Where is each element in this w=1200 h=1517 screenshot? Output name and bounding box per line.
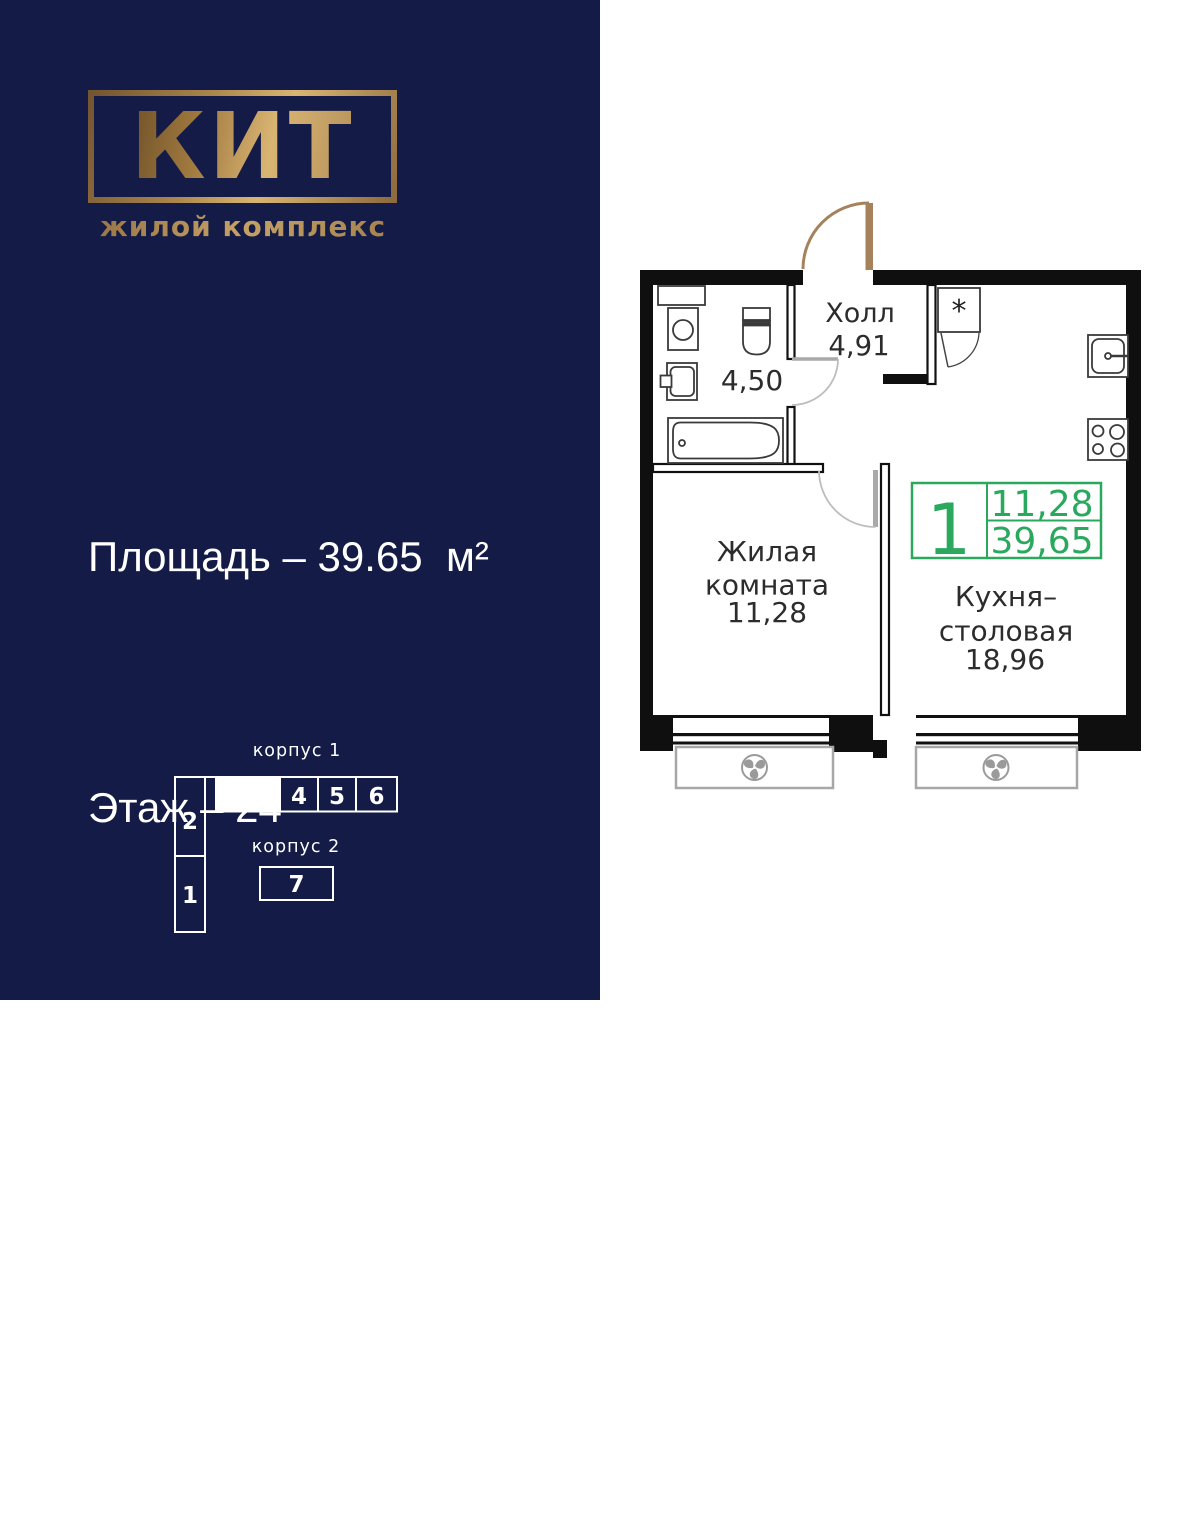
section-4-number: 4: [291, 784, 307, 810]
bathroom-area: 4,50: [721, 364, 783, 397]
wall-bottom-right-pier: [1078, 715, 1141, 751]
building-scheme: корпус 1 корпус 2 2 1 4 5 6 7: [150, 725, 420, 940]
closet-asterisk: *: [952, 294, 967, 329]
bath-sink-basin: [671, 367, 695, 396]
bathtub-drain-icon: [679, 440, 685, 446]
living-label-line1: Жилая: [717, 535, 817, 568]
kitchen-window-bg: [916, 715, 1078, 746]
toilet-bowl: [743, 326, 770, 355]
stove-burner-2: [1110, 425, 1124, 439]
entrance-door-arc: [803, 203, 869, 269]
living-window-line3: [673, 742, 829, 745]
kitchen-area: 18,96: [965, 643, 1045, 676]
toilet-tank: [743, 308, 770, 320]
stove-burner-1: [1093, 426, 1104, 437]
washing-machine-drum-icon: [673, 320, 693, 340]
living-window-line1: [673, 715, 829, 718]
logo-frame: КИТ: [88, 90, 397, 203]
wall-left: [640, 270, 653, 751]
living-window-line2: [673, 733, 829, 736]
kitchen-fixtures: [1088, 335, 1128, 460]
bath-sink-faucet-icon: [661, 376, 672, 388]
bathroom-door-arc: [792, 359, 838, 405]
bathtub-basin: [673, 423, 779, 459]
section-7-number: 7: [288, 872, 304, 898]
doors: [792, 203, 878, 527]
kitchen-window-line3: [916, 742, 1078, 745]
section-6-number: 6: [368, 784, 384, 810]
scheme-selected-section: [216, 777, 280, 812]
kitchen-balcony: [916, 747, 1077, 788]
kitchen-window-line1: [916, 715, 1078, 718]
detail-finishing: Отделка – Без отделки: [88, 1267, 533, 1351]
wall-bath-south: [653, 464, 823, 472]
wall-living-kitchen: [881, 464, 889, 715]
detail-area: Площадь – 39.65 м²: [88, 515, 533, 599]
badge-living-area: 11,28: [990, 484, 1093, 525]
korpus1-label: корпус 1: [253, 741, 342, 761]
wall-bath-east-lower: [788, 407, 795, 466]
badge-total-area: 39,65: [990, 521, 1093, 562]
detail-rooms: Комнат – 1: [88, 1016, 533, 1100]
kitchen-window-line2: [916, 733, 1078, 736]
closet: *: [938, 288, 980, 367]
floor-plan: * Холл 4,91 4,50 Жилая комната 11,28 Кух…: [600, 0, 1200, 1000]
section-1-number: 1: [182, 883, 198, 909]
entrance-door-leaf: [866, 203, 874, 270]
wall-bottom-middle-pier: [829, 715, 873, 752]
section-5-number: 5: [329, 784, 345, 810]
section-2-number: 2: [182, 809, 198, 835]
stove-burner-3: [1093, 444, 1103, 454]
closet-door-arc: [948, 333, 979, 367]
wall-bath-east-upper: [788, 285, 795, 359]
hall-label: Холл: [825, 298, 895, 329]
stove-burner-4: [1111, 444, 1124, 457]
kitchen-sink-drain-icon: [1105, 353, 1111, 359]
badge-rooms-count: 1: [927, 489, 972, 571]
left-info-panel: КИТ жилой комплекс Площадь – 39.65 м² Эт…: [0, 0, 600, 1000]
living-door-leaf: [873, 470, 878, 527]
hall-area: 4,91: [828, 330, 889, 362]
info-badge: 1 11,28 39,65: [912, 483, 1101, 571]
wall-top-left: [640, 270, 803, 285]
living-area: 11,28: [727, 596, 807, 629]
logo-text: КИТ: [131, 96, 355, 197]
closet-door-leaf: [941, 333, 948, 367]
bath-shelf: [658, 286, 705, 305]
wall-hall-east: [928, 285, 936, 384]
toilet-lid-line1: [743, 321, 770, 323]
logo-subtitle: жилой комплекс: [48, 210, 438, 243]
living-window-bg: [673, 715, 829, 746]
kitchen-label-line1: Кухня–: [955, 580, 1057, 613]
living-balcony: [676, 747, 833, 788]
wall-top-right: [873, 270, 1141, 285]
wall-bottom-left-pier: [640, 715, 673, 751]
wall-bottom-middle-step: [873, 740, 887, 758]
korpus2-label: корпус 2: [252, 837, 341, 857]
living-door-arc: [819, 471, 876, 528]
